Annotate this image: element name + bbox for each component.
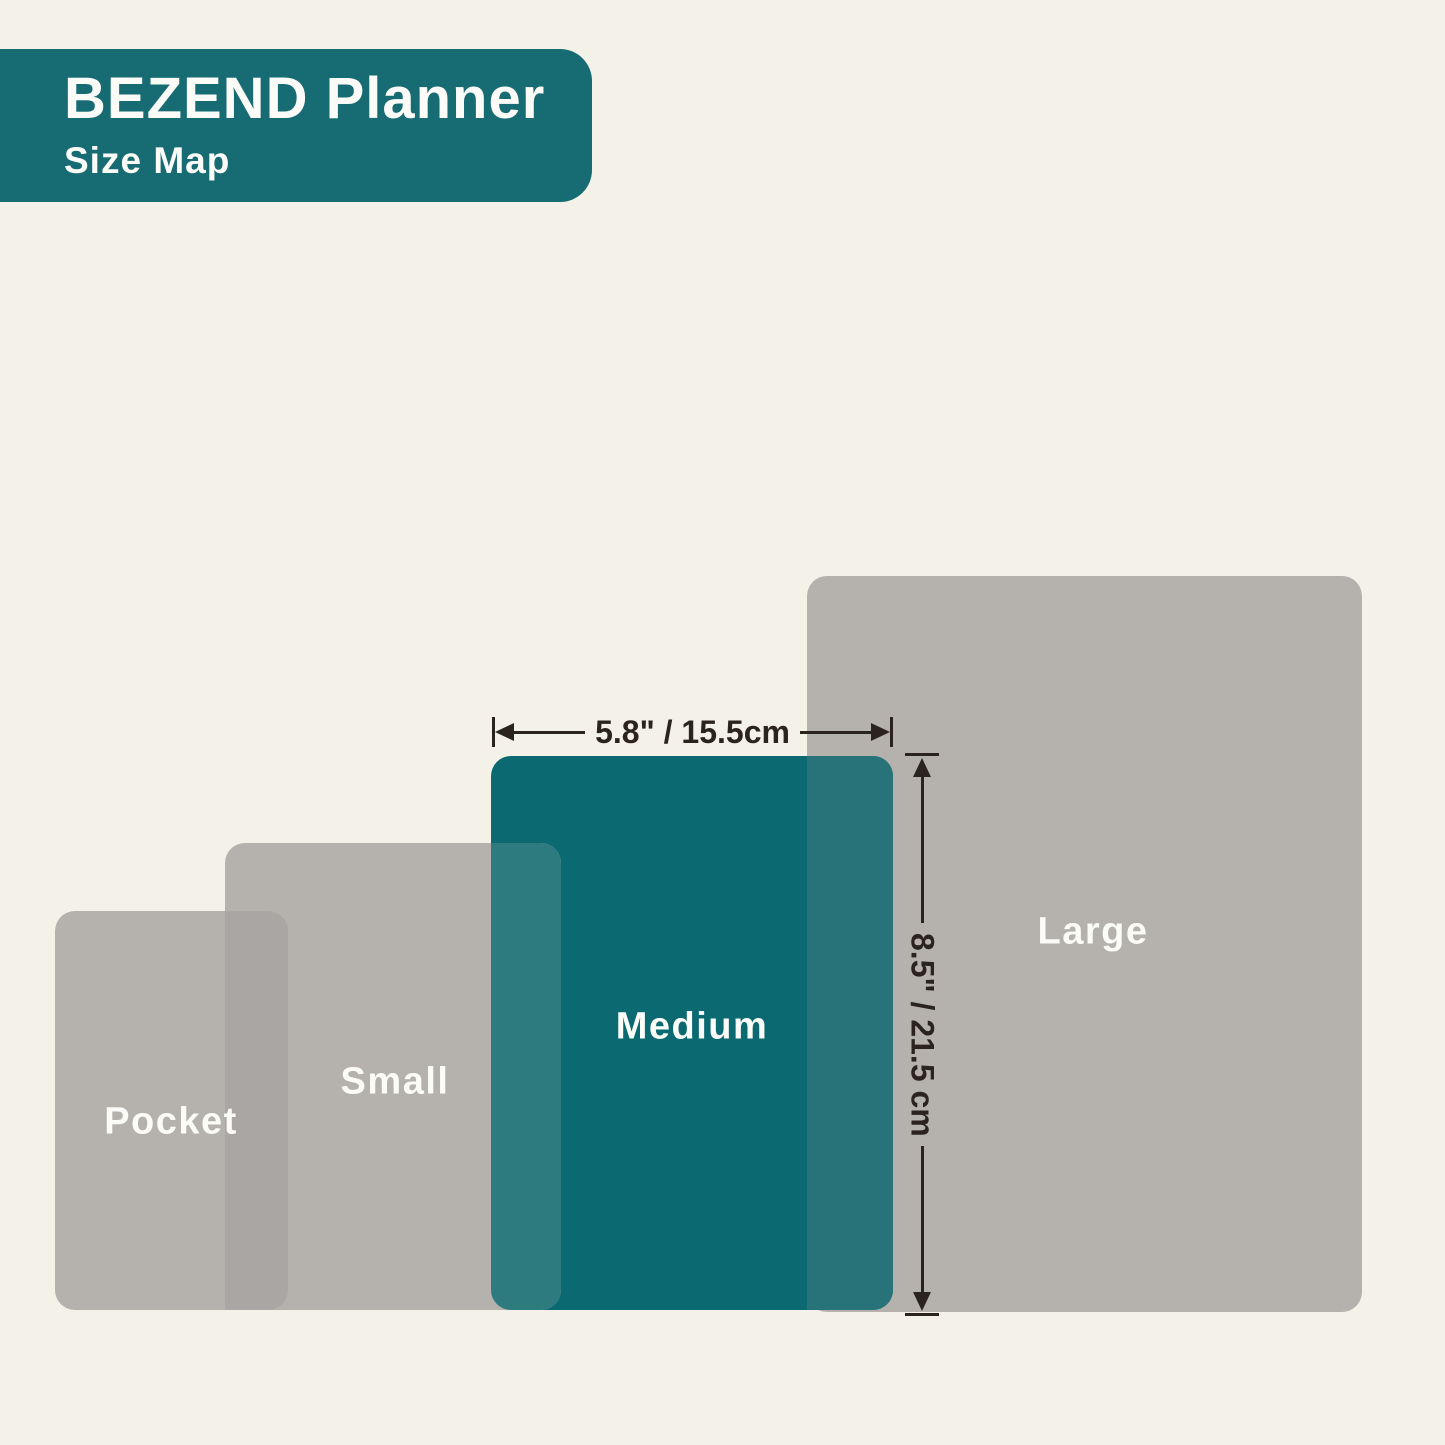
overlap-medium-large — [807, 756, 893, 1310]
dim-line-left — [514, 731, 585, 734]
size-map-page: BEZEND Planner Size Map Pocket Small Med… — [0, 0, 1445, 1445]
arrow-down-icon — [913, 1292, 931, 1311]
arrow-right-icon — [871, 723, 890, 741]
header-badge: BEZEND Planner Size Map — [0, 49, 592, 202]
dim-tick-top — [905, 753, 939, 756]
width-dimension-label: 5.8" / 15.5cm — [585, 714, 800, 751]
size-label-medium: Medium — [616, 1006, 769, 1049]
dim-tick-right — [890, 717, 893, 747]
dim-line-bottom — [921, 1146, 924, 1292]
size-label-pocket: Pocket — [104, 1101, 238, 1144]
dim-line-right — [800, 731, 871, 734]
dim-tick-bottom — [905, 1313, 939, 1316]
page-subtitle: Size Map — [64, 140, 592, 182]
page-title: BEZEND Planner — [64, 69, 592, 130]
arrow-up-icon — [913, 758, 931, 777]
dim-line-top — [921, 777, 924, 923]
size-label-small: Small — [341, 1061, 450, 1104]
arrow-left-icon — [495, 723, 514, 741]
size-label-large: Large — [1038, 911, 1149, 954]
height-dimension: 8.5" / 21.5 cm — [905, 753, 939, 1316]
overlap-small-medium — [491, 843, 561, 1310]
width-dimension: 5.8" / 15.5cm — [492, 716, 893, 748]
height-dimension-label: 8.5" / 21.5 cm — [904, 923, 941, 1147]
